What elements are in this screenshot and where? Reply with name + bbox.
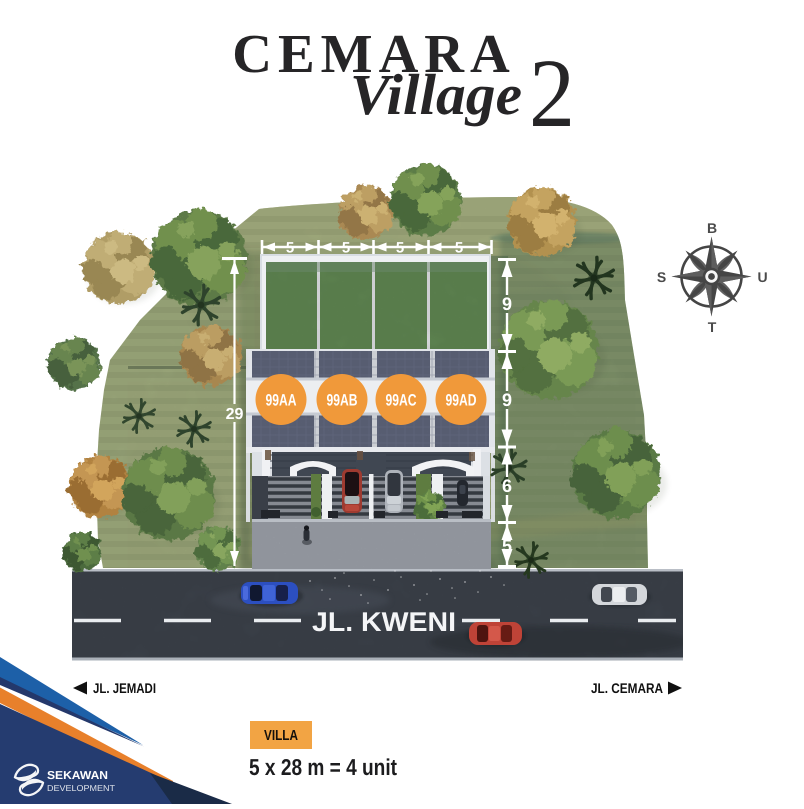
svg-text:99AB: 99AB bbox=[327, 392, 358, 410]
svg-text:99AA: 99AA bbox=[266, 392, 297, 410]
svg-text:Village: Village bbox=[350, 62, 522, 127]
svg-text:99AD: 99AD bbox=[446, 392, 477, 410]
svg-text:5: 5 bbox=[396, 240, 404, 257]
svg-text:S: S bbox=[657, 269, 666, 285]
svg-text:U: U bbox=[757, 269, 767, 285]
svg-text:B: B bbox=[707, 220, 717, 236]
svg-text:2: 2 bbox=[529, 40, 575, 148]
svg-text:29: 29 bbox=[226, 406, 244, 423]
svg-text:5 x 28 m = 4 unit: 5 x 28 m = 4 unit bbox=[249, 754, 397, 780]
svg-text:9: 9 bbox=[502, 390, 512, 410]
svg-text:99AC: 99AC bbox=[386, 392, 417, 410]
svg-text:JL. JEMADI: JL. JEMADI bbox=[93, 680, 156, 696]
svg-text:DEVELOPMENT: DEVELOPMENT bbox=[47, 783, 116, 793]
svg-text:SEKAWAN: SEKAWAN bbox=[47, 770, 108, 782]
svg-text:9: 9 bbox=[502, 294, 512, 314]
svg-text:6: 6 bbox=[502, 476, 512, 496]
svg-text:T: T bbox=[708, 319, 717, 335]
svg-text:5: 5 bbox=[342, 240, 350, 257]
svg-text:VILLA: VILLA bbox=[264, 728, 298, 744]
svg-text:5: 5 bbox=[455, 240, 463, 257]
svg-text:JL. KWENI: JL. KWENI bbox=[312, 607, 456, 637]
svg-text:JL. CEMARA: JL. CEMARA bbox=[591, 680, 663, 696]
svg-text:5: 5 bbox=[286, 240, 294, 257]
svg-text:5: 5 bbox=[502, 536, 512, 556]
